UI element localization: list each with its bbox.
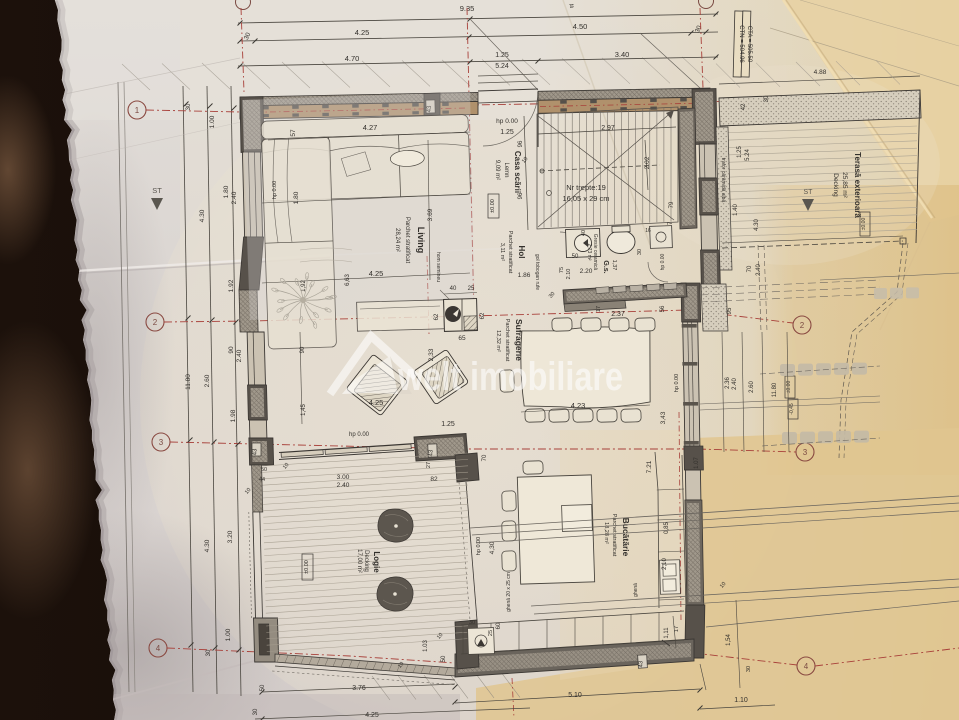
- svg-text:Terasă exterioară: Terasă exterioară: [853, 152, 862, 218]
- svg-text:25: 25: [468, 286, 475, 292]
- svg-text:50: 50: [261, 467, 267, 473]
- svg-text:2.40: 2.40: [756, 264, 762, 276]
- svg-text:30: 30: [746, 666, 752, 672]
- svg-text:1.80: 1.80: [293, 191, 300, 204]
- svg-text:hp 0.00: hp 0.00: [660, 253, 666, 270]
- svg-text:2.40: 2.40: [337, 482, 350, 489]
- svg-text:6,63: 6,63: [345, 274, 351, 286]
- svg-text:96: 96: [518, 140, 524, 147]
- svg-text:1.25: 1.25: [500, 129, 514, 136]
- svg-text:±0.00: ±0.00: [304, 560, 310, 574]
- svg-text:3,11 m²: 3,11 m²: [499, 243, 505, 261]
- svg-text:2.97: 2.97: [601, 125, 615, 132]
- svg-text:4.88: 4.88: [814, 69, 827, 76]
- svg-text:4.50: 4.50: [573, 22, 588, 31]
- svg-text:95: 95: [727, 307, 733, 314]
- svg-text:1.00: 1.00: [225, 628, 232, 641]
- svg-text:hp 0.00: hp 0.00: [349, 432, 370, 438]
- svg-text:Parchet stratificat: Parchet stratificat: [404, 217, 410, 264]
- svg-text:27: 27: [426, 462, 432, 468]
- svg-text:4: 4: [804, 662, 809, 671]
- svg-text:welt imobiliare: welt imobiliare: [397, 355, 623, 399]
- svg-text:1.98: 1.98: [230, 409, 237, 422]
- svg-text:3.00: 3.00: [337, 474, 350, 481]
- svg-text:17: 17: [596, 306, 602, 312]
- svg-text:60: 60: [496, 622, 502, 629]
- svg-text:2.02: 2.02: [644, 156, 651, 169]
- svg-text:Parchet stratificat: Parchet stratificat: [507, 231, 513, 274]
- svg-text:28,24 m²: 28,24 m²: [394, 228, 400, 252]
- svg-text:17,00 m²: 17,00 m²: [356, 549, 362, 573]
- svg-text:Bucătărie: Bucătărie: [621, 518, 631, 557]
- svg-text:4.25: 4.25: [369, 269, 384, 278]
- svg-text:40: 40: [581, 230, 587, 236]
- svg-text:57: 57: [290, 129, 297, 137]
- svg-text:62: 62: [434, 313, 440, 320]
- svg-text:1,11: 1,11: [664, 627, 670, 639]
- svg-text:5.10: 5.10: [568, 692, 582, 699]
- svg-text:5.24: 5.24: [495, 63, 509, 70]
- svg-text:4.25: 4.25: [365, 712, 379, 719]
- svg-text:1.00: 1.00: [209, 115, 216, 128]
- svg-text:4.27: 4.27: [363, 123, 378, 132]
- svg-text:1: 1: [135, 106, 140, 115]
- svg-text:1.40: 1.40: [733, 204, 739, 216]
- svg-text:ghenă: ghenă: [633, 583, 639, 597]
- svg-text:3.76: 3.76: [352, 685, 366, 692]
- svg-text:G.s.: G.s.: [602, 260, 609, 273]
- svg-text:1.80: 1.80: [223, 185, 230, 198]
- svg-text:1.10: 1.10: [734, 697, 748, 704]
- svg-text:1,37: 1,37: [611, 260, 617, 271]
- svg-text:±0.00: ±0.00: [786, 381, 792, 394]
- svg-text:70: 70: [747, 265, 753, 272]
- svg-text:±0.00: ±0.00: [490, 199, 496, 213]
- svg-text:43: 43: [638, 660, 644, 668]
- svg-text:30: 30: [206, 649, 212, 656]
- svg-text:50: 50: [441, 655, 447, 662]
- svg-text:Lemn: Lemn: [503, 162, 509, 177]
- svg-text:1.25: 1.25: [737, 146, 743, 158]
- svg-text:62: 62: [480, 312, 486, 319]
- svg-text:40: 40: [450, 286, 457, 292]
- svg-text:-0,45: -0,45: [789, 403, 795, 415]
- svg-text:ST: ST: [804, 189, 814, 196]
- svg-text:CTA = 505.50: CTA = 505.50: [746, 26, 752, 63]
- svg-text:1.86: 1.86: [518, 272, 531, 279]
- svg-text:11.80: 11.80: [185, 374, 192, 390]
- svg-text:4.30: 4.30: [204, 539, 211, 552]
- svg-text:30: 30: [186, 103, 192, 110]
- svg-text:50: 50: [572, 254, 579, 260]
- svg-text:2.40: 2.40: [732, 378, 738, 390]
- svg-text:4.25: 4.25: [369, 398, 384, 407]
- svg-text:2.60: 2.60: [749, 381, 755, 393]
- svg-text:0,85: 0,85: [664, 522, 670, 534]
- svg-text:11.80: 11.80: [772, 382, 778, 397]
- svg-text:65: 65: [458, 335, 466, 342]
- svg-text:±0.00: ±0.00: [861, 218, 867, 231]
- svg-text:CTN = 504.96: CTN = 504.96: [738, 25, 744, 63]
- svg-text:79: 79: [669, 201, 675, 208]
- svg-text:82: 82: [430, 476, 438, 483]
- svg-text:50: 50: [260, 684, 266, 691]
- svg-text:90: 90: [228, 346, 235, 354]
- svg-text:12,32 m²: 12,32 m²: [495, 330, 501, 352]
- svg-text:4.25: 4.25: [355, 28, 370, 37]
- svg-text:2.40: 2.40: [236, 349, 243, 362]
- svg-text:Parchet stratificat: Parchet stratificat: [611, 514, 617, 557]
- svg-text:16,05 x 29 cm: 16,05 x 29 cm: [562, 194, 609, 203]
- svg-text:17: 17: [674, 626, 680, 632]
- svg-text:hp 0.00: hp 0.00: [496, 118, 518, 125]
- svg-text:hp 0.00: hp 0.00: [674, 374, 680, 392]
- svg-text:3: 3: [159, 438, 164, 447]
- svg-text:7.21: 7.21: [646, 460, 653, 473]
- svg-text:25: 25: [488, 630, 494, 636]
- svg-text:2.37: 2.37: [611, 311, 625, 318]
- svg-text:3.20: 3.20: [227, 530, 234, 543]
- svg-text:4: 4: [156, 644, 161, 653]
- svg-text:1.07: 1.07: [694, 457, 700, 469]
- svg-text:2.60: 2.60: [204, 374, 211, 387]
- svg-text:2.36: 2.36: [725, 377, 731, 389]
- svg-text:Decking: Decking: [363, 550, 369, 572]
- svg-text:4.30: 4.30: [199, 209, 206, 222]
- svg-text:1.03: 1.03: [423, 640, 429, 652]
- svg-text:30: 30: [469, 620, 475, 626]
- svg-text:2: 2: [153, 318, 158, 327]
- svg-text:4.23: 4.23: [571, 401, 586, 410]
- svg-text:trafor cărămidă albă: trafor cărămidă albă: [720, 158, 726, 203]
- svg-text:3.69: 3.69: [427, 208, 434, 221]
- svg-text:25,85 m²: 25,85 m²: [841, 172, 848, 198]
- svg-text:hp 0.00: hp 0.00: [476, 537, 482, 555]
- svg-text:Living: Living: [416, 227, 426, 254]
- svg-text:ghenă 20 x 25 cm: ghenă 20 x 25 cm: [506, 572, 512, 612]
- svg-text:3.40: 3.40: [615, 50, 630, 59]
- svg-text:3: 3: [803, 448, 808, 457]
- svg-text:2,10: 2,10: [662, 558, 668, 570]
- svg-text:16: 16: [645, 228, 651, 234]
- svg-text:75: 75: [559, 267, 565, 273]
- svg-text:30: 30: [637, 249, 643, 255]
- svg-text:Decking: Decking: [832, 173, 839, 197]
- svg-text:42: 42: [741, 103, 747, 110]
- svg-text:56: 56: [660, 305, 666, 312]
- svg-text:90: 90: [300, 346, 306, 353]
- svg-text:2.20: 2.20: [580, 268, 593, 275]
- svg-text:1.25: 1.25: [441, 421, 455, 428]
- svg-text:2.40: 2.40: [231, 191, 238, 204]
- svg-text:70: 70: [482, 454, 488, 461]
- svg-text:3,43: 3,43: [660, 411, 667, 424]
- svg-text:hom semineu: hom semineu: [435, 252, 441, 282]
- svg-text:2.10: 2.10: [566, 269, 572, 280]
- svg-text:Logie: Logie: [372, 551, 381, 573]
- svg-text:1,45: 1,45: [301, 404, 307, 416]
- svg-text:1,54: 1,54: [726, 634, 732, 646]
- svg-text:1.92: 1.92: [228, 279, 235, 292]
- svg-text:ță: ță: [568, 4, 574, 8]
- svg-text:9,09 m²: 9,09 m²: [494, 160, 500, 180]
- svg-text:2,73 m²: 2,73 m²: [586, 244, 592, 261]
- svg-text:4.70: 4.70: [345, 54, 360, 63]
- svg-text:4,30: 4,30: [489, 541, 496, 554]
- svg-text:hp 0.00: hp 0.00: [272, 181, 278, 199]
- svg-text:4.30: 4.30: [754, 219, 760, 231]
- svg-text:2: 2: [800, 321, 805, 330]
- svg-text:ST: ST: [152, 186, 162, 195]
- svg-text:Nr trepte:19: Nr trepte:19: [566, 183, 606, 192]
- svg-text:43: 43: [253, 448, 259, 455]
- svg-text:44: 44: [259, 477, 265, 483]
- svg-text:Casa scării: Casa scării: [513, 151, 522, 193]
- svg-text:30: 30: [764, 95, 770, 102]
- svg-text:Hol: Hol: [517, 246, 526, 259]
- svg-text:30: 30: [253, 708, 259, 715]
- svg-text:gol tobogan rufe: gol tobogan rufe: [534, 254, 540, 290]
- svg-text:5.24: 5.24: [745, 149, 751, 161]
- svg-text:18,28 m²: 18,28 m²: [603, 522, 609, 544]
